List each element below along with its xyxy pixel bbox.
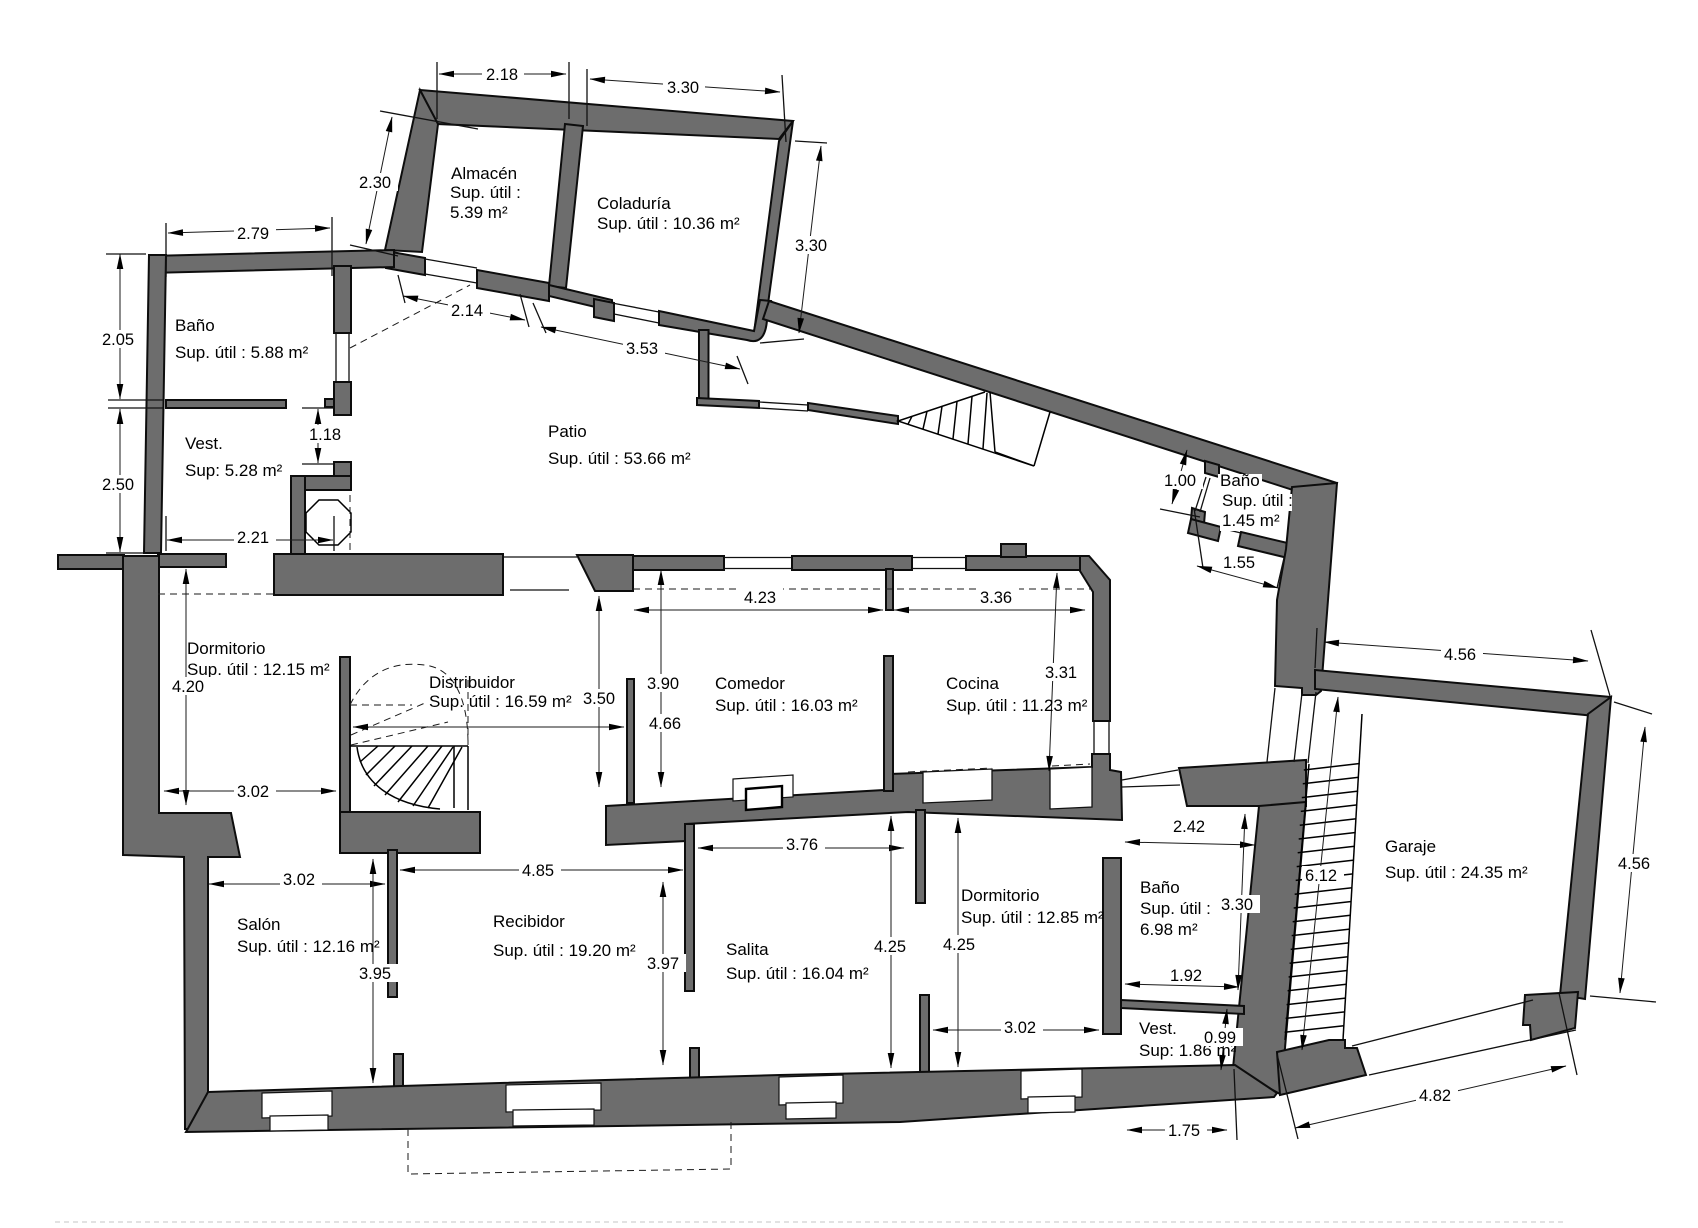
svg-text:Sup. útil : 5.88 m²: Sup. útil : 5.88 m² [175,343,309,362]
svg-text:2.79: 2.79 [237,225,269,243]
svg-text:1.75: 1.75 [1168,1122,1200,1140]
svg-text:Dormitorio: Dormitorio [187,639,265,658]
svg-text:Sup. útil : 12.16 m²: Sup. útil : 12.16 m² [237,937,380,956]
svg-text:4.82: 4.82 [1419,1087,1451,1105]
svg-text:5.39 m²: 5.39 m² [450,203,508,222]
svg-text:Sup. útil :: Sup. útil : [450,183,521,202]
svg-text:4.85: 4.85 [522,862,554,880]
svg-text:3.30: 3.30 [667,79,699,97]
svg-text:3.50: 3.50 [583,690,615,708]
svg-text:3.02: 3.02 [283,871,315,889]
svg-text:2.14: 2.14 [451,302,483,320]
svg-text:4.23: 4.23 [744,589,776,607]
svg-text:3.90: 3.90 [647,675,679,693]
svg-text:Sup. útil : 10.36 m²: Sup. útil : 10.36 m² [597,214,740,233]
svg-text:Sup. útil : 16.04 m²: Sup. útil : 16.04 m² [726,964,869,983]
svg-text:6.12: 6.12 [1305,867,1337,885]
svg-text:1.45 m²: 1.45 m² [1222,511,1280,530]
svg-text:Sup. útil : 16.03 m²: Sup. útil : 16.03 m² [715,696,858,715]
svg-text:Salita: Salita [726,940,769,959]
svg-text:1.18: 1.18 [309,426,341,444]
svg-text:Almacén: Almacén [451,164,517,183]
svg-text:Salón: Salón [237,915,280,934]
svg-text:2.21: 2.21 [237,529,269,547]
svg-text:2.05: 2.05 [102,331,134,349]
svg-text:Sup. útil : 11.23 m²: Sup. útil : 11.23 m² [946,696,1088,715]
svg-text:4.56: 4.56 [1444,646,1476,664]
svg-text:Garaje: Garaje [1385,837,1436,856]
svg-text:2.18: 2.18 [486,66,518,84]
svg-text:Dormitorio: Dormitorio [961,886,1039,905]
svg-text:2.50: 2.50 [102,476,134,494]
svg-text:Cocina: Cocina [946,674,999,693]
svg-text:2.42: 2.42 [1173,818,1205,836]
svg-text:3.31: 3.31 [1045,664,1077,682]
svg-text:Distribuidor: Distribuidor [429,673,515,692]
svg-text:3.36: 3.36 [980,589,1012,607]
svg-text:Sup. útil :: Sup. útil : [1140,899,1211,918]
svg-text:Sup. útil : 16.59 m²: Sup. útil : 16.59 m² [429,692,572,711]
svg-text:Sup: 5.28 m²: Sup: 5.28 m² [185,461,283,480]
svg-text:3.95: 3.95 [359,965,391,983]
svg-text:3.30: 3.30 [795,237,827,255]
svg-text:3.97: 3.97 [647,955,679,973]
svg-text:Baño: Baño [175,316,215,335]
svg-text:0.99: 0.99 [1204,1029,1236,1047]
svg-text:6.98 m²: 6.98 m² [1140,920,1198,939]
svg-text:4.25: 4.25 [943,936,975,954]
svg-text:1.55: 1.55 [1223,554,1255,572]
svg-text:Sup. útil :: Sup. útil : [1222,491,1293,510]
svg-text:3.02: 3.02 [237,783,269,801]
svg-text:Sup. útil : 12.15 m²: Sup. útil : 12.15 m² [187,660,330,679]
svg-text:2.30: 2.30 [359,174,391,192]
svg-text:4.56: 4.56 [1618,855,1650,873]
svg-text:Baño: Baño [1220,471,1260,490]
svg-text:3.53: 3.53 [626,340,658,358]
svg-text:1.00: 1.00 [1164,472,1196,490]
svg-text:Sup. útil : 12.85 m²: Sup. útil : 12.85 m² [961,908,1104,927]
svg-text:Coladuría: Coladuría [597,194,671,213]
svg-text:Sup. útil : 19.20 m²: Sup. útil : 19.20 m² [493,941,636,960]
svg-text:Sup. útil : 24.35 m²: Sup. útil : 24.35 m² [1385,863,1528,882]
svg-text:4.20: 4.20 [172,678,204,696]
svg-text:Sup. útil : 53.66 m²: Sup. útil : 53.66 m² [548,449,691,468]
svg-text:Baño: Baño [1140,878,1180,897]
svg-text:3.02: 3.02 [1004,1019,1036,1037]
svg-text:3.76: 3.76 [786,836,818,854]
svg-text:3.30: 3.30 [1221,896,1253,914]
svg-text:Patio: Patio [548,422,587,441]
svg-text:1.92: 1.92 [1170,967,1202,985]
svg-text:Comedor: Comedor [715,674,785,693]
svg-text:4.25: 4.25 [874,938,906,956]
svg-text:Vest.: Vest. [185,434,223,453]
svg-text:4.66: 4.66 [649,715,681,733]
svg-text:Vest.: Vest. [1139,1019,1177,1038]
svg-text:Recibidor: Recibidor [493,912,565,931]
